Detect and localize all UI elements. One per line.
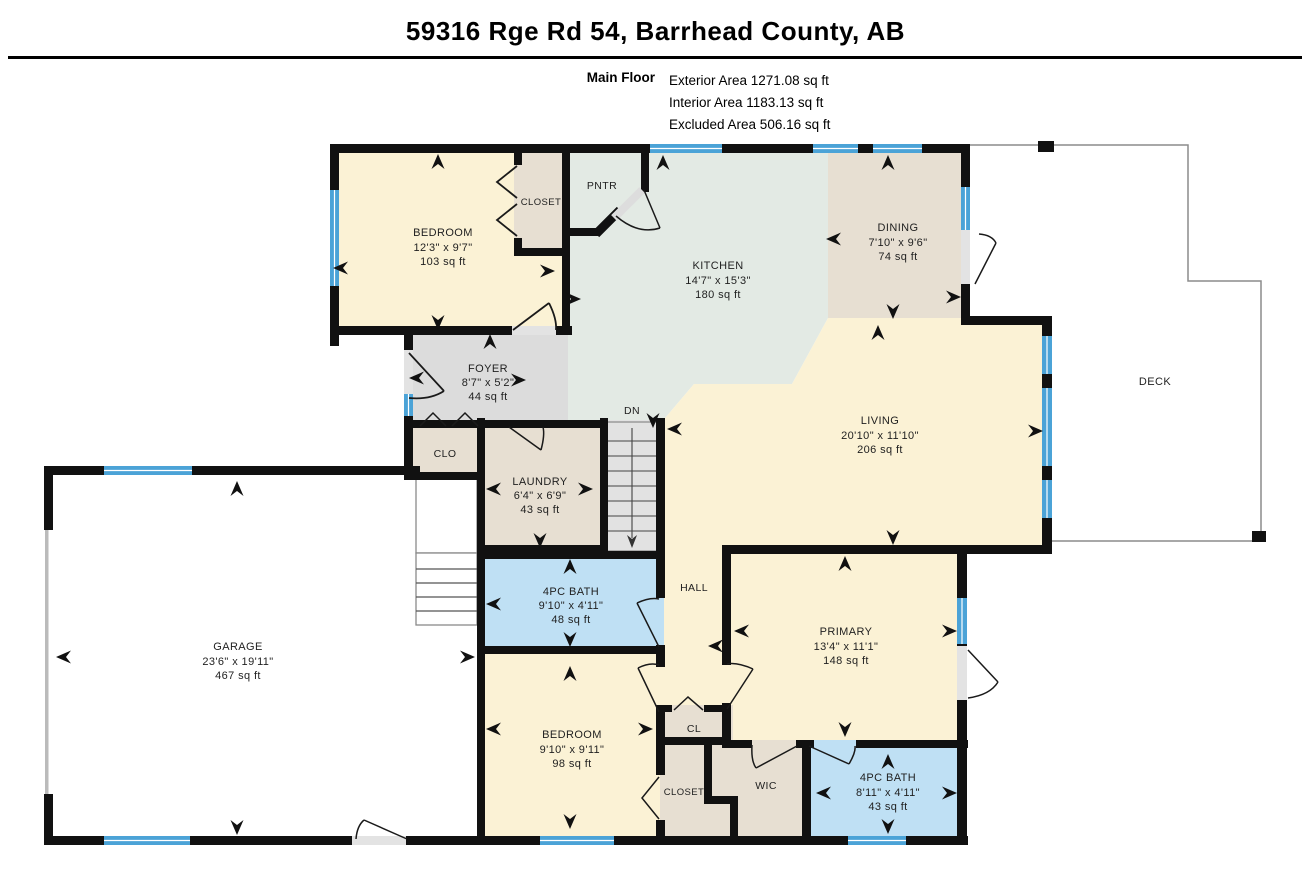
label-garage-dims: 23'6" x 19'11"	[202, 656, 273, 668]
label-garage-name: GARAGE	[213, 641, 262, 653]
label-living-dims: 20'10" x 11'10"	[841, 430, 919, 442]
label-bath-main-name: 4PC BATH	[543, 586, 599, 598]
label-bedroom-b-dims: 9'10" x 9'11"	[540, 744, 605, 756]
label-primary-name: PRIMARY	[820, 626, 873, 638]
label-garage-area: 467 sq ft	[215, 670, 261, 682]
label-bedroom-tl-dims: 12'3" x 9'7"	[413, 242, 472, 254]
deck-post-2	[1252, 531, 1266, 542]
label-primary-area: 148 sq ft	[823, 655, 869, 667]
label-dining-area: 74 sq ft	[878, 251, 917, 263]
label-laundry-name: LAUNDRY	[512, 476, 567, 488]
entry-stairs	[416, 478, 477, 625]
label-foyer-dims: 8'7" x 5'2"	[462, 377, 515, 389]
label-deck: DECK	[1139, 376, 1171, 388]
label-bath-ensuite-area: 43 sq ft	[868, 801, 907, 813]
label-bedroom-tl-name: BEDROOM	[413, 227, 473, 239]
label-laundry-dims: 6'4" x 6'9"	[514, 490, 567, 502]
label-bedroom-tl-area: 103 sq ft	[420, 256, 466, 268]
label-hall: HALL	[680, 582, 708, 594]
label-living-name: LIVING	[861, 415, 899, 427]
label-closet-b: CLOSET	[664, 787, 704, 798]
door-primary-exterior	[968, 650, 998, 698]
label-bedroom-b-name: BEDROOM	[542, 729, 602, 741]
label-wic: WIC	[755, 780, 777, 792]
label-dining-name: DINING	[878, 222, 919, 234]
label-kitchen-dims: 14'7" x 15'3"	[685, 275, 751, 287]
label-clo: CLO	[434, 448, 457, 460]
label-bath-main-area: 48 sq ft	[551, 614, 590, 626]
label-dining-dims: 7'10" x 9'6"	[868, 237, 927, 249]
room-hall	[656, 545, 730, 712]
room-dining	[828, 149, 968, 321]
label-foyer-name: FOYER	[468, 363, 508, 375]
label-bedroom-b-area: 98 sq ft	[552, 758, 591, 770]
floor-plan-drawing: BEDROOM 12'3" x 9'7" 103 sq ft CLOSET PN…	[0, 0, 1311, 876]
label-bath-ensuite-dims: 8'11" x 4'11"	[856, 787, 920, 799]
label-living-area: 206 sq ft	[857, 444, 903, 456]
label-kitchen-area: 180 sq ft	[695, 289, 741, 301]
label-kitchen-name: KITCHEN	[692, 260, 743, 272]
floor-plan-page: 59316 Rge Rd 54, Barrhead County, AB Mai…	[0, 0, 1311, 876]
label-cl: CL	[687, 723, 701, 735]
label-primary-dims: 13'4" x 11'1"	[814, 641, 879, 653]
label-bath-ensuite-name: 4PC BATH	[860, 772, 916, 784]
label-bath-main-dims: 9'10" x 4'11"	[539, 600, 604, 612]
label-stairs-dn: DN	[624, 405, 640, 417]
label-closet-tl: CLOSET	[521, 197, 561, 208]
stairs-dn	[604, 422, 660, 551]
label-laundry-area: 43 sq ft	[520, 504, 559, 516]
label-pantry: PNTR	[587, 180, 617, 192]
label-foyer-area: 44 sq ft	[468, 391, 507, 403]
deck-post	[1038, 141, 1054, 152]
